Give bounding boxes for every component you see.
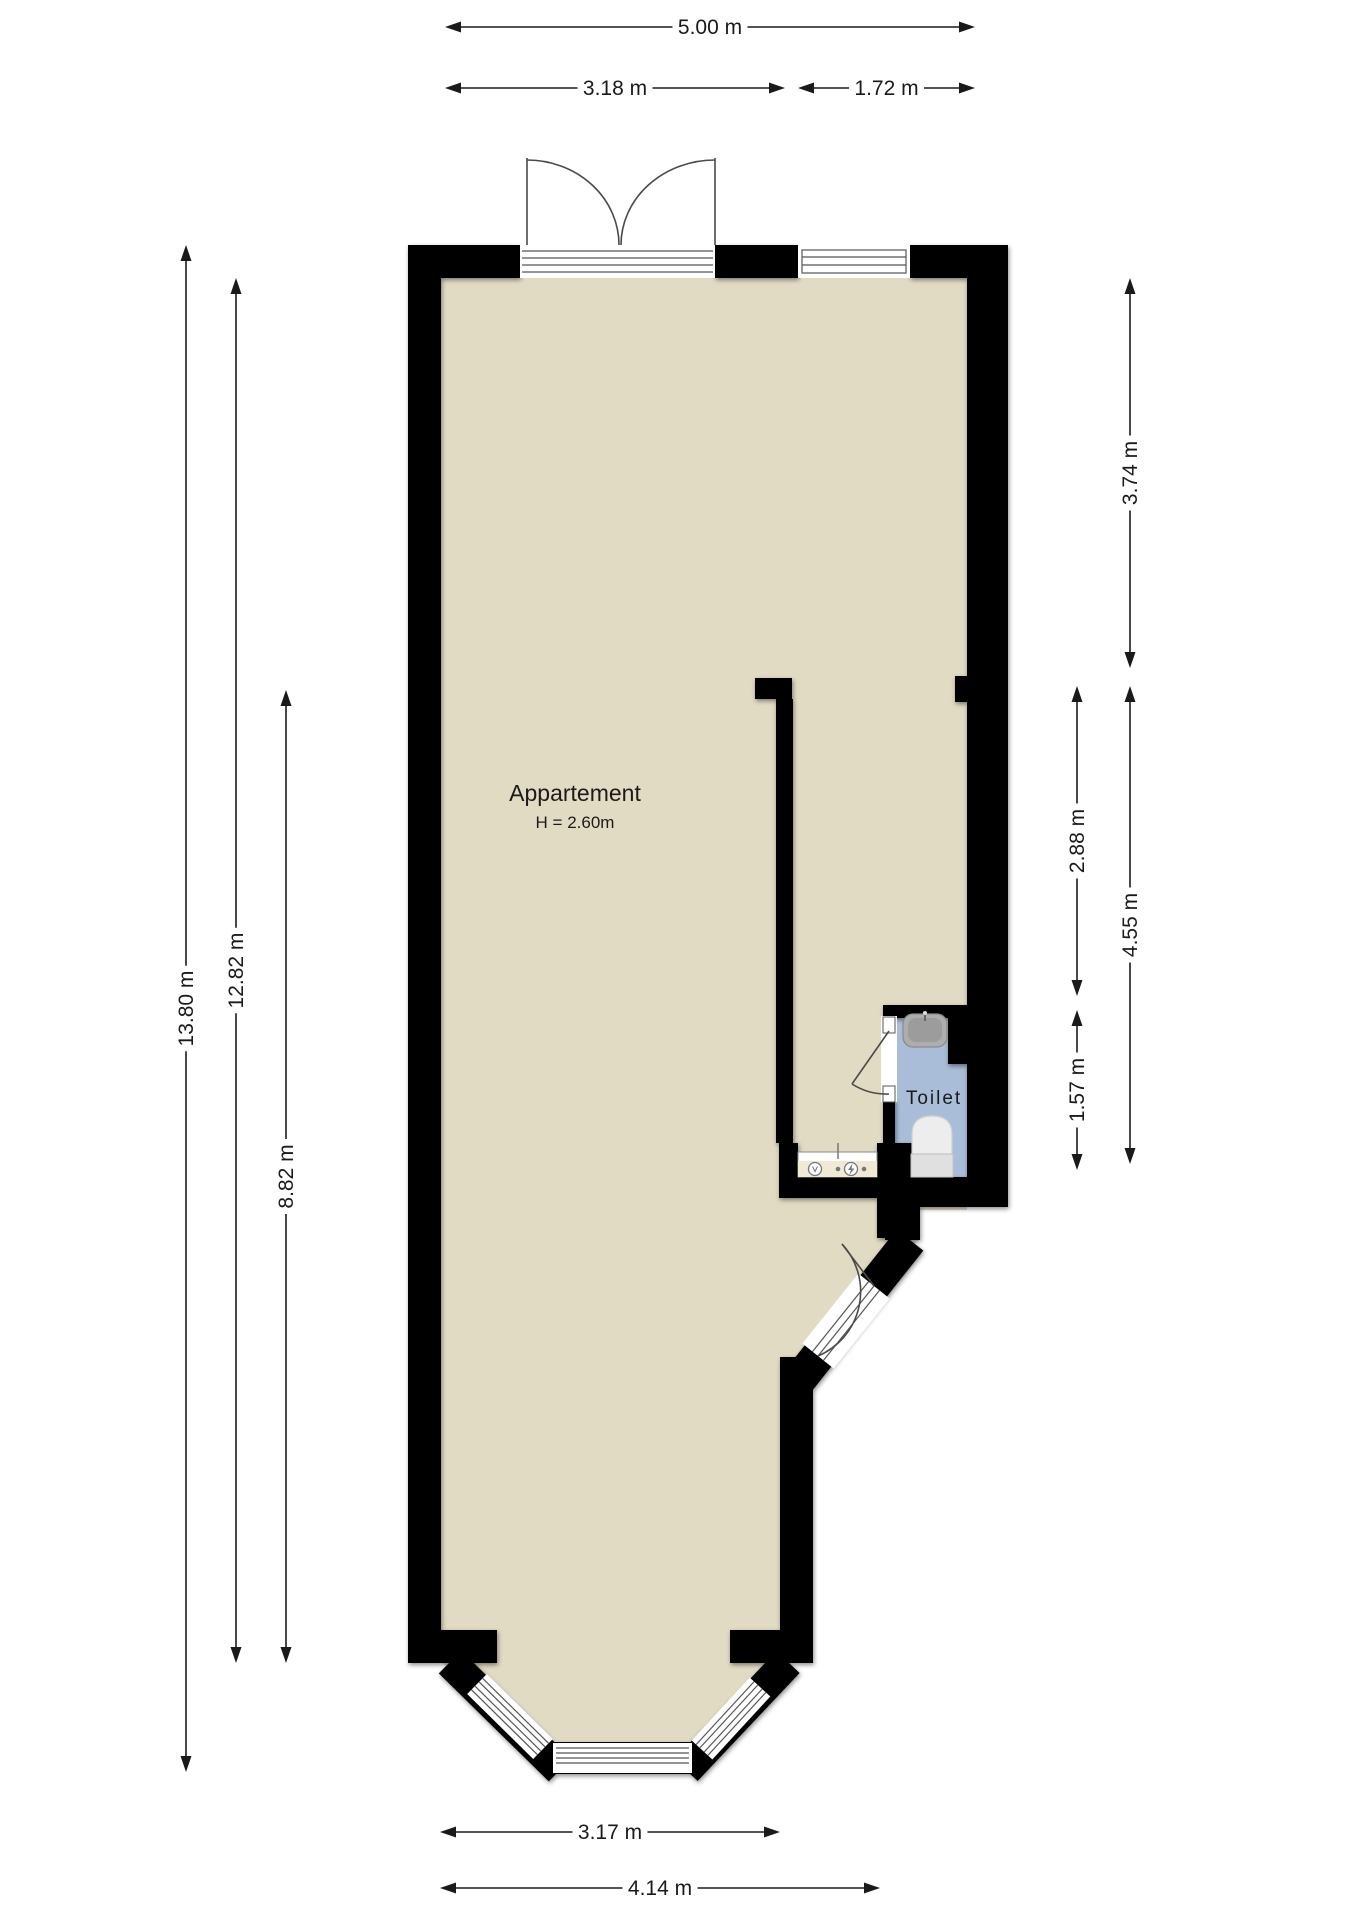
dimension-arrowhead [798, 83, 814, 94]
dimension-label: 4.55 m [1119, 893, 1142, 957]
french-door-left-arc [527, 160, 619, 245]
dimension-arrowhead [281, 690, 292, 706]
wall-interior-stub [755, 678, 792, 699]
dimension-arrowhead [440, 1827, 456, 1838]
apartment-height-label: H = 2.60m [536, 813, 615, 832]
dimension-label: 2.88 m [1066, 809, 1089, 873]
floor-plan: Appartement H = 2.60m Toilet 5.00 m3.18 … [0, 0, 1358, 1920]
dimension-label: 4.14 m [628, 1877, 692, 1900]
wall-toilet-duct [948, 1017, 975, 1064]
wall-bottom-left [408, 1630, 497, 1663]
dimension-label: 1.72 m [854, 77, 918, 100]
dimension-arrowhead [769, 83, 785, 94]
dimension-arrowhead [231, 278, 242, 294]
dimension-arrowhead [1125, 1148, 1136, 1164]
toilet-cistern-icon [911, 1154, 953, 1177]
wall-top-mid [715, 245, 798, 278]
french-door-right-arc [621, 160, 715, 245]
dimension-arrowhead [959, 83, 975, 94]
wall-toilet-bottom [883, 1177, 1008, 1207]
dimension-arrowhead [440, 1883, 456, 1894]
dimension-arrowhead [959, 22, 975, 33]
top-window [798, 245, 910, 278]
dimension-label: 1.57 m [1066, 1058, 1089, 1122]
wall-niche-bottom [782, 1177, 885, 1198]
dimension-arrowhead [1072, 1010, 1083, 1026]
dimension-arrowhead [764, 1827, 780, 1838]
dimension-arrowhead [864, 1883, 880, 1894]
dimension-arrowhead [181, 245, 192, 261]
dimension-label: 3.18 m [583, 77, 647, 100]
dimension-arrowhead [1072, 1154, 1083, 1170]
apartment-label: Appartement [509, 780, 641, 806]
sink-basin-icon [809, 1163, 822, 1176]
dimension-label: 5.00 m [678, 16, 742, 39]
wall-left [408, 245, 441, 1663]
dimension-label: 3.17 m [578, 1821, 642, 1844]
wall-right-stub [955, 676, 1008, 702]
dimension-label: 8.82 m [275, 1144, 298, 1208]
dimension-arrowhead [445, 22, 461, 33]
dimension-arrowhead [1072, 980, 1083, 996]
dimension-arrowhead [181, 1756, 192, 1772]
french-door [520, 158, 715, 278]
dimension-label: 13.80 m [175, 971, 198, 1047]
dimension-label: 3.74 m [1119, 441, 1142, 505]
dimension-label: 12.82 m [225, 933, 248, 1009]
wall-lower-right [780, 1357, 813, 1663]
dimension-arrowhead [1125, 652, 1136, 668]
dimension-arrowhead [1125, 686, 1136, 702]
toilet-label: Toilet [906, 1088, 962, 1109]
dimension-arrowhead [281, 1647, 292, 1663]
dimension-arrowhead [1125, 278, 1136, 294]
dimension-arrowhead [231, 1647, 242, 1663]
wall-toilet-left [883, 1100, 895, 1177]
toilet-bowl-icon [912, 1116, 952, 1156]
dimension-arrowhead [445, 83, 461, 94]
wall-interior-vertical [776, 699, 793, 1143]
dimension-arrowhead [1072, 686, 1083, 702]
